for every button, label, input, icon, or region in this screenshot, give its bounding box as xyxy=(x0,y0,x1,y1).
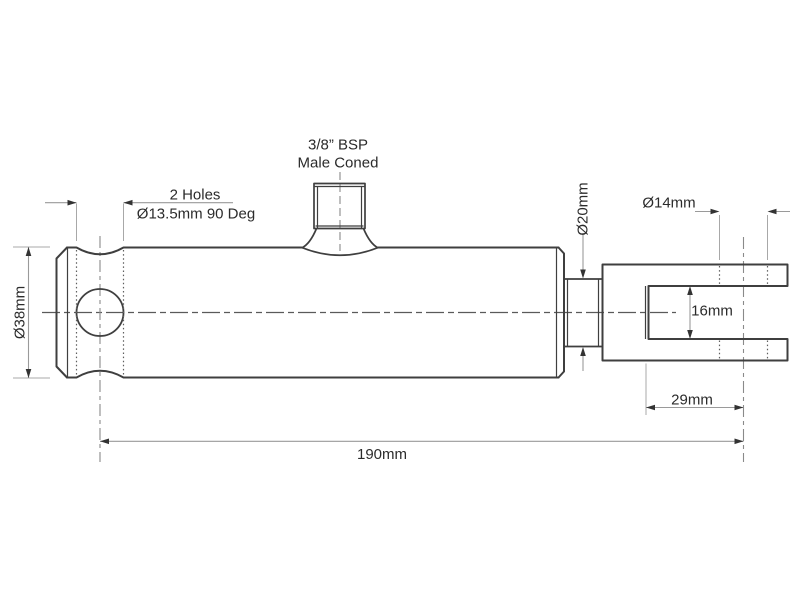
arrow-left-icon xyxy=(100,439,109,445)
arrow-left-icon xyxy=(124,200,133,206)
overall-length-label: 190mm xyxy=(357,446,407,463)
holes-extension-lines xyxy=(77,204,124,242)
arrow-up-icon xyxy=(687,286,693,295)
arrow-left-icon xyxy=(646,405,655,411)
arrow-down-icon xyxy=(26,369,32,378)
port-label-line2: Male Coned xyxy=(298,155,379,172)
arrow-left-icon xyxy=(768,209,777,215)
rod-diameter-label: Ø20mm xyxy=(575,182,592,235)
arrow-right-icon xyxy=(735,405,744,411)
arrow-down-icon xyxy=(580,270,586,279)
holes-label-line1: 2 Holes xyxy=(170,187,221,204)
jaw-depth-label: 29mm xyxy=(671,392,713,409)
holes-label-line2: Ø13.5mm 90 Deg xyxy=(137,206,255,223)
technical-drawing-page: 3/8” BSP Male Coned 2 Holes Ø13.5mm 90 D… xyxy=(0,0,800,600)
hydraulic-cylinder-drawing: 3/8” BSP Male Coned 2 Holes Ø13.5mm 90 D… xyxy=(0,0,800,600)
arrow-up-icon xyxy=(580,347,586,356)
pin-hole-diameter-label: Ø14mm xyxy=(642,195,695,212)
port-label-line1: 3/8” BSP xyxy=(308,137,368,154)
arrow-right-icon xyxy=(735,439,744,445)
arrow-right-icon xyxy=(68,200,77,206)
arrow-down-icon xyxy=(687,330,693,339)
arrow-up-icon xyxy=(26,247,32,256)
jaw-gap-label: 16mm xyxy=(691,303,733,320)
barrel-bottom-edge xyxy=(67,371,559,378)
arrow-right-icon xyxy=(711,209,720,215)
body-diameter-label: Ø38mm xyxy=(12,286,29,339)
